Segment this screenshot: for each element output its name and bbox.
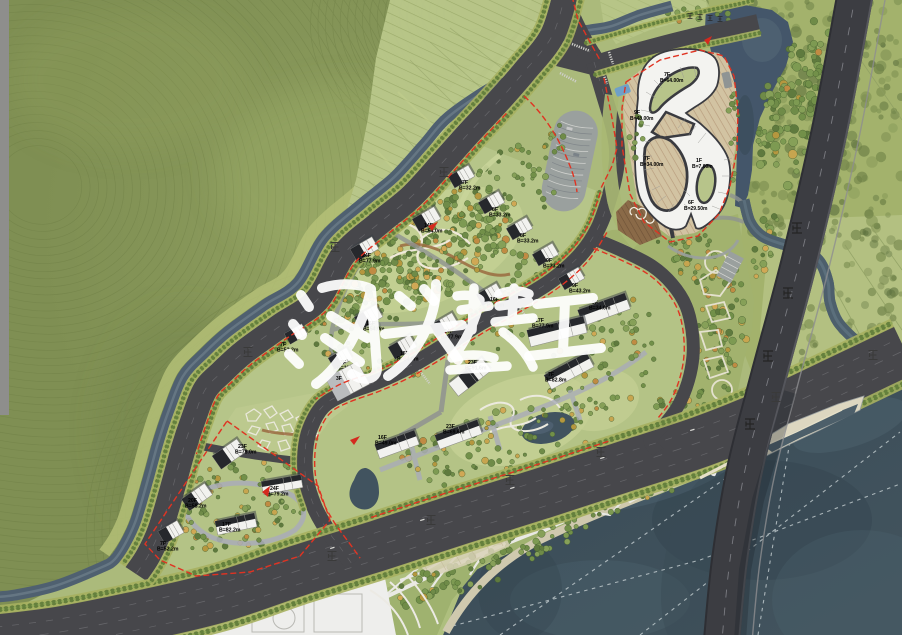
svg-text:B=77.9m: B=77.9m xyxy=(359,259,381,265)
svg-text:B=29.50m: B=29.50m xyxy=(684,206,708,212)
svg-text:B=82.2m: B=82.2m xyxy=(219,528,241,534)
svg-text:B=82.8m: B=82.8m xyxy=(545,378,567,384)
svg-text:B=78.0m: B=78.0m xyxy=(235,450,257,456)
svg-text:B=34.00m: B=34.00m xyxy=(640,162,664,168)
svg-text:B=32.2m: B=32.2m xyxy=(459,186,481,192)
svg-text:B=49.0m: B=49.0m xyxy=(375,441,397,447)
svg-text:B=79.2m: B=79.2m xyxy=(267,492,289,498)
svg-text:3F: 3F xyxy=(336,376,342,382)
svg-text:B=33.2m: B=33.2m xyxy=(489,213,511,219)
svg-text:B=58.2m: B=58.2m xyxy=(185,504,207,510)
svg-text:B=7.00m: B=7.00m xyxy=(692,164,713,170)
svg-text:B=34.0m: B=34.0m xyxy=(589,306,611,312)
svg-text:B=64.00m: B=64.00m xyxy=(660,78,684,84)
svg-text:B=52.2m: B=52.2m xyxy=(157,547,179,553)
svg-text:B=77.9m: B=77.9m xyxy=(532,324,554,330)
svg-text:B=33.2m: B=33.2m xyxy=(517,239,539,245)
svg-text:B=48.00m: B=48.00m xyxy=(630,116,654,122)
svg-text:B=33.2m: B=33.2m xyxy=(543,264,565,270)
svg-text:B=69.6m: B=69.6m xyxy=(443,430,465,436)
